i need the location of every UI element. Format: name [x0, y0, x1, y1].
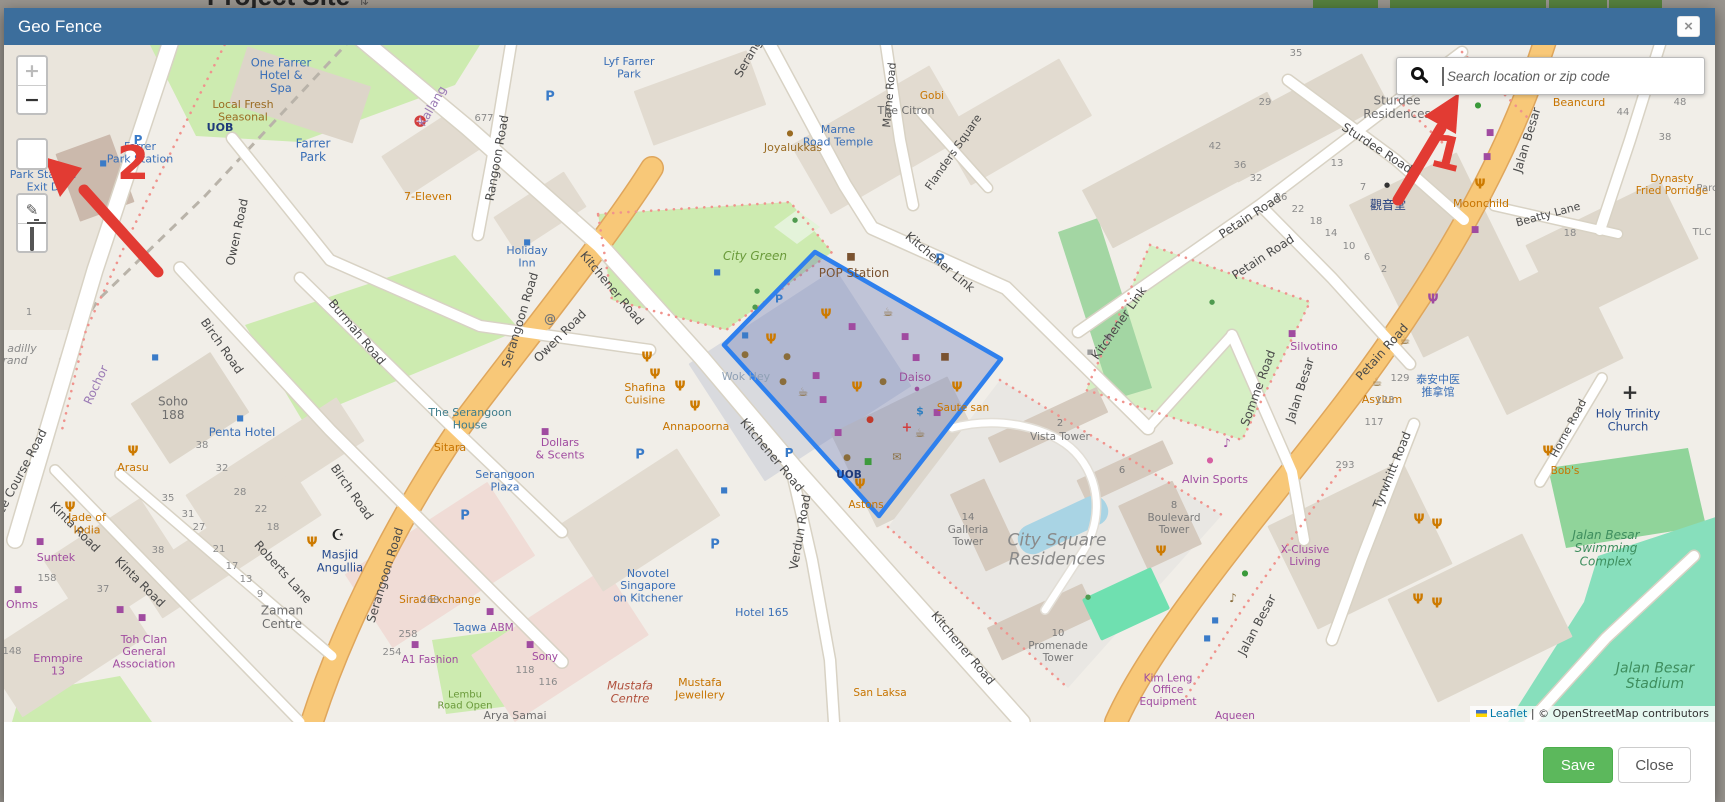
map-poi-icon: ☕: [798, 385, 809, 399]
map-poi-icon: ■: [1211, 616, 1219, 625]
map-poi-icon: Ψ: [765, 333, 776, 348]
map-label: Parc R: [1696, 183, 1715, 194]
map-label: Penta Hotel: [209, 425, 276, 439]
map-label: 2: [1057, 418, 1063, 429]
hidden-filter-button-sliver: [1313, 0, 1378, 8]
map-label: 22: [1292, 204, 1305, 215]
map-label: Gobi: [920, 90, 944, 102]
map-label: 268: [420, 595, 439, 606]
map-label: 29: [1259, 97, 1272, 108]
annotation-arrow-2-label: 2: [117, 136, 149, 190]
map-label: 1: [26, 307, 32, 318]
map-label: Moonchild: [1453, 197, 1509, 210]
map-label: 293: [1335, 460, 1354, 471]
map-label: 31: [182, 509, 195, 520]
search-icon: [1411, 67, 1424, 80]
map-poi-icon: ■: [151, 353, 159, 362]
map-poi-icon: Ψ: [851, 381, 862, 396]
map-label: 116: [538, 677, 557, 688]
map-label: 18: [267, 522, 280, 533]
text-cursor: [1442, 67, 1444, 86]
map-label: San Laksa: [853, 687, 906, 699]
map-poi-icon: ☪: [331, 526, 344, 544]
map-label: 258: [398, 629, 417, 640]
map-label: 123: [1375, 395, 1394, 406]
map-poi-icon: ■: [1486, 128, 1495, 138]
map-poi-icon: Ψ: [1427, 293, 1438, 308]
map-poi-icon: ●: [1384, 181, 1390, 189]
map-label: 148: [4, 646, 22, 657]
screen: Project Site⇅ Geo Fence × ΨΨΨΨΨΨΨΨΨΨΨΨΨΨ…: [0, 0, 1725, 802]
map-poi-icon: $: [916, 405, 924, 418]
map-label: 13: [1331, 158, 1344, 169]
map-label: The Citron: [877, 104, 935, 117]
map-poi-icon: ■: [138, 613, 147, 623]
map-poi-icon: Ψ: [820, 308, 831, 323]
map-label: 6: [1364, 252, 1370, 263]
map-label: Aqueen: [1215, 710, 1255, 722]
map-poi-icon: ●: [843, 453, 851, 463]
map-label: Jalan BesarStadium: [1613, 660, 1696, 692]
search-input[interactable]: [1445, 59, 1695, 93]
map-label: 36: [1234, 160, 1247, 171]
map-poi-icon: ☕: [915, 426, 926, 440]
map-label: Daiso: [899, 370, 931, 384]
map-poi-icon: Ψ: [1412, 593, 1423, 608]
map-label: 26: [1275, 192, 1288, 203]
map-label: 2: [1381, 264, 1387, 275]
map-poi-icon: P: [545, 90, 555, 105]
map-label: Sony: [532, 651, 558, 663]
map-poi-icon: Ψ: [1431, 597, 1442, 612]
map-label: 35: [162, 493, 175, 504]
map-label: GalleriaTower: [948, 524, 989, 548]
map-label: Saute san: [937, 402, 989, 414]
backdrop-top: Project Site⇅: [4, 0, 1715, 8]
map-label: MustafaCentre: [607, 679, 653, 706]
map-container[interactable]: ΨΨΨΨΨΨΨΨΨΨΨΨΨΨΨΨΨΨΨΨ●●●●●●■■☕☕☕☕☕✉■■■■■■…: [4, 45, 1715, 722]
map-label: City SquareResidences: [1008, 531, 1107, 570]
map-label: Vista Tower: [1030, 431, 1090, 443]
map-label: Jalan BesarSwimmingComplex: [1570, 528, 1640, 569]
map-label: Annapoorna: [663, 420, 730, 433]
map-label: 44: [1617, 107, 1630, 118]
map-label: 28: [234, 487, 247, 498]
map-label: UOB: [836, 469, 861, 481]
map-poi-icon: ●: [752, 303, 758, 311]
map-poi-icon: Ψ: [127, 445, 138, 460]
trash-icon: [30, 227, 34, 251]
map-canvas[interactable]: ΨΨΨΨΨΨΨΨΨΨΨΨΨΨΨΨΨΨΨΨ●●●●●●■■☕☕☕☕☕✉■■■■■■…: [4, 45, 1715, 722]
attribution-divider: |: [1531, 707, 1535, 720]
map-poi-icon: P: [635, 448, 645, 463]
map-poi-icon: ●: [1242, 569, 1249, 578]
map-label: 38: [1659, 132, 1672, 143]
map-poi-icon: ■: [848, 322, 857, 332]
map-poi-icon: ■: [36, 537, 45, 547]
map-label: Wok Hey: [722, 370, 771, 383]
hidden-settings-button-sliver: [1609, 0, 1662, 8]
backdrop-right: [1715, 0, 1725, 802]
map-poi-icon: ●: [783, 352, 791, 362]
map-label: Alvin Sports: [1182, 473, 1248, 486]
map-label: Arasu: [117, 461, 149, 474]
map-label: FarrerPark: [296, 136, 331, 163]
map-poi-icon: ■: [116, 605, 125, 615]
map-poi-icon: ●: [779, 377, 787, 387]
geofence-modal: Geo Fence × ΨΨΨΨΨΨΨΨΨΨΨΨΨΨΨΨΨΨΨΨ●●●●●●■■…: [4, 8, 1715, 802]
map-label: 677: [474, 113, 493, 124]
map-label: 7-Eleven: [404, 190, 452, 203]
map-label: ShafinaCuisine: [624, 380, 665, 405]
modal-close-button[interactable]: ×: [1677, 16, 1700, 37]
map-poi-icon: ●: [866, 415, 874, 425]
map-label: A1 Fashion: [402, 654, 459, 666]
map-poi-icon: ■: [864, 457, 873, 467]
map-poi-icon: ☕: [883, 305, 894, 319]
zoom-in-button[interactable]: +: [18, 57, 46, 85]
map-label: Sitara: [434, 441, 466, 454]
map-poi-icon: Ψ: [1431, 518, 1442, 533]
map-poi-icon: ■: [486, 607, 495, 617]
map-label: 14: [962, 512, 975, 523]
location-search-box: [1396, 57, 1705, 95]
map-poi-icon: ♪: [1229, 591, 1237, 605]
map-poi-icon: ■: [720, 486, 728, 495]
map-poi-icon: Ψ: [306, 536, 317, 551]
map-poi-icon: ■: [940, 352, 949, 363]
ukraine-flag-icon: [1476, 710, 1487, 717]
hidden-export-button-sliver: [1390, 0, 1546, 8]
map-label: 38: [196, 440, 209, 451]
save-button[interactable]: Save: [1543, 747, 1613, 783]
map-poi-icon: ●: [1475, 101, 1482, 110]
draw-polygon-button[interactable]: [18, 140, 46, 168]
map-label: Joyalukkas: [763, 141, 823, 154]
map-poi-icon: ●: [741, 350, 749, 360]
map-label: City Green: [723, 249, 787, 263]
edit-toolbar: ✎: [16, 193, 48, 253]
map-poi-icon: ■: [901, 332, 910, 342]
map-poi-icon: Ψ: [1474, 178, 1485, 193]
hidden-add-button-sliver: [1549, 0, 1607, 8]
map-label: rand: [4, 354, 29, 367]
map-poi-icon: ■: [14, 585, 23, 595]
edit-pencil-icon: ✎: [26, 201, 39, 219]
map-label: Arya Samai: [483, 709, 546, 722]
sort-icon: ⇅: [358, 0, 369, 8]
map-label: TLC: [1692, 227, 1712, 238]
map-label: 35: [1290, 48, 1303, 59]
map-poi-icon: +: [902, 421, 913, 436]
map-poi-icon: ■: [1483, 152, 1492, 162]
map-label: POP Station: [819, 266, 889, 280]
osm-credit: © OpenStreetMap contributors: [1538, 707, 1709, 720]
map-label: MasjidAngullia: [317, 548, 363, 575]
map-label: Sirad Exchange: [399, 594, 481, 606]
map-label: 14: [1325, 228, 1338, 239]
map-label: 37: [97, 584, 110, 595]
map-label: Taqwa: [453, 622, 487, 634]
map-poi-icon: ☕: [1372, 375, 1383, 389]
map-label: 27: [193, 522, 206, 533]
map-poi-icon: ■: [834, 428, 843, 438]
draw-toolbar: [16, 138, 48, 170]
map-label: 32: [216, 463, 229, 474]
map-poi-icon: Ψ: [641, 351, 652, 366]
map-label: 泰安中医推拿馆: [1416, 371, 1460, 397]
map-poi-icon: ■: [99, 159, 107, 168]
map-poi-icon: ●: [879, 377, 887, 387]
map-label: Beancurd: [1553, 96, 1605, 109]
map-label: Silvotino: [1290, 340, 1338, 353]
map-label: Suntek: [37, 551, 76, 564]
map-poi-icon: ■: [236, 414, 244, 423]
leaflet-link[interactable]: Leaflet: [1490, 707, 1527, 720]
map-label: 7: [1360, 182, 1366, 193]
map-poi-icon: P: [460, 509, 470, 524]
map-poi-icon: ●: [754, 287, 760, 295]
map-poi-icon: ■: [819, 395, 828, 405]
map-poi-icon: ✉: [892, 451, 901, 464]
map-poi-icon: ●: [1209, 298, 1215, 306]
map-poi-icon: ■: [812, 371, 821, 381]
map-label: Soho188: [158, 394, 188, 421]
map-label: ABM: [490, 622, 513, 634]
map-label: 6: [1119, 465, 1125, 476]
zoom-control: + −: [16, 55, 48, 115]
map-attribution: Leaflet | © OpenStreetMap contributors: [1470, 706, 1715, 722]
close-button[interactable]: Close: [1618, 747, 1691, 783]
map-label: 158: [37, 573, 56, 584]
map-label: MustafaJewellery: [674, 675, 725, 700]
map-label: 32: [1250, 173, 1263, 184]
map-label: 18: [1310, 216, 1323, 227]
map-poi-icon: ●: [1085, 593, 1091, 601]
edit-layers-button[interactable]: ✎: [18, 195, 46, 223]
map-label: 118: [515, 665, 534, 676]
map-poi-icon: ●: [792, 216, 798, 224]
map-poi-icon: ■: [1203, 634, 1211, 643]
modal-title: Geo Fence: [18, 8, 102, 45]
zoom-out-button[interactable]: −: [18, 85, 46, 113]
map-poi-icon: @: [544, 312, 556, 326]
delete-layers-button[interactable]: [18, 223, 46, 251]
map-poi-icon: Ψ: [1413, 513, 1424, 528]
modal-header: Geo Fence ×: [4, 8, 1715, 45]
map-poi-icon: ■: [411, 640, 420, 650]
map-poi-icon: ●: [1207, 456, 1214, 465]
map-poi-icon: ■: [1471, 225, 1480, 235]
map-poi-icon: Ψ: [951, 381, 962, 396]
map-label: 13: [240, 574, 253, 585]
map-poi-icon: ■: [526, 640, 535, 650]
map-label: 9: [257, 589, 263, 600]
map-poi-icon: ■: [713, 268, 721, 277]
map-poi-icon: Ψ: [674, 380, 685, 395]
map-poi-icon: ■: [846, 252, 855, 263]
map-label: 21: [213, 544, 226, 555]
modal-footer: Save Close: [4, 722, 1715, 802]
map-label: Astons: [848, 499, 883, 511]
map-poi-icon: Ψ: [689, 400, 700, 415]
map-label: Bob's: [1551, 465, 1580, 477]
map-poi-icon: P: [775, 293, 783, 306]
map-label: 17: [226, 561, 239, 572]
map-label: 42: [1209, 141, 1222, 152]
map-poi-icon: P: [785, 446, 794, 460]
map-label: 10: [1052, 628, 1065, 639]
map-poi-icon: ♪: [1223, 436, 1231, 450]
map-label: 22: [255, 504, 268, 515]
page-title: Project Site⇅: [207, 0, 369, 8]
map-poi-icon: +: [1622, 380, 1639, 404]
map-poi-icon: ■: [741, 331, 749, 340]
map-poi-icon: ■: [912, 353, 921, 363]
map-label: 129: [1390, 373, 1409, 384]
map-label: Ohms: [6, 598, 38, 611]
map-label: Dollars& Scents: [536, 435, 585, 460]
map-poi-icon: ■: [1288, 329, 1297, 339]
map-label: 10: [1343, 241, 1356, 252]
map-label: 18: [1564, 228, 1577, 239]
map-label: Local FreshSeasonal: [212, 97, 273, 122]
map-label: Hotel 165: [735, 606, 789, 619]
map-label: 48: [1674, 97, 1687, 108]
map-label: 38: [152, 545, 165, 556]
map-poi-icon: Ψ: [1155, 545, 1166, 560]
map-label: 117: [1364, 417, 1383, 428]
map-label: ZamanCentre: [261, 603, 303, 630]
map-poi-icon: P: [710, 538, 720, 553]
map-poi-icon: ●: [914, 386, 919, 393]
map-label: 8: [1171, 500, 1177, 511]
map-poi-icon: ●: [787, 129, 794, 138]
map-label: 254: [382, 647, 401, 658]
